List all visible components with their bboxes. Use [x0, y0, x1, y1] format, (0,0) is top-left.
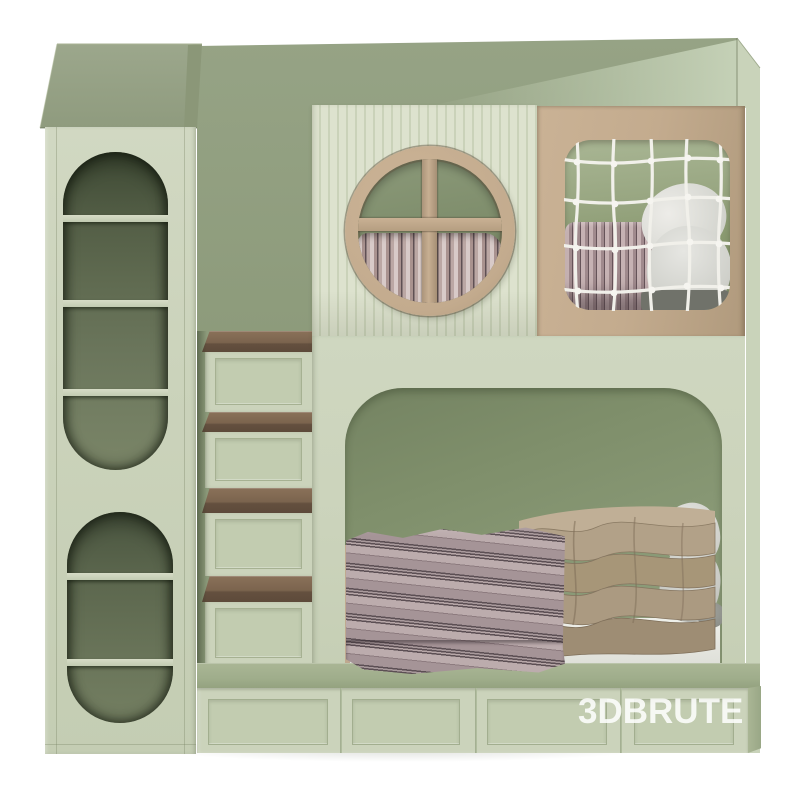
- cabinet-roof: [40, 44, 202, 128]
- shelf: [63, 215, 168, 222]
- drawer-divider: [475, 688, 477, 753]
- stair-tread: [202, 488, 312, 513]
- stair-riser: [205, 352, 312, 412]
- shelf: [63, 300, 168, 307]
- stairs: [197, 325, 312, 665]
- drawer-divider: [340, 688, 342, 753]
- stair-drawer-panel: [215, 358, 302, 405]
- stair-drawer-panel: [215, 519, 302, 569]
- blanket-hem: [346, 640, 565, 674]
- shelf: [63, 389, 168, 396]
- round-window: [345, 146, 515, 316]
- shelf: [67, 573, 173, 580]
- drawer-panel: [208, 699, 328, 745]
- drawer-panel: [352, 699, 460, 745]
- shelf: [67, 659, 173, 666]
- base-side-face: [748, 686, 761, 753]
- lower-arched-niche: [67, 512, 173, 723]
- stair-riser: [205, 602, 312, 665]
- stair-riser: [205, 513, 312, 576]
- stair-drawer-panel: [215, 608, 302, 658]
- upper-arched-niche: [63, 152, 168, 470]
- climbing-net: [558, 133, 736, 317]
- stair-riser: [205, 432, 312, 488]
- stair-drawer-panel: [215, 438, 302, 481]
- cabinet-seam: [56, 127, 57, 754]
- stairs-shadow: [197, 331, 207, 665]
- stair-tread: [202, 576, 312, 602]
- watermark: 3DBRUTE: [578, 694, 743, 729]
- storage-cabinet: [45, 127, 196, 754]
- stair-tread: [202, 331, 312, 352]
- window-muntin-horizontal: [358, 218, 502, 231]
- render-stage: 3DBRUTE: [0, 0, 800, 800]
- striped-blanket: [346, 526, 565, 674]
- stair-tread: [202, 412, 312, 432]
- round-window-interior: [358, 159, 502, 303]
- cabinet-seam: [184, 127, 185, 754]
- cabinet-seam: [45, 744, 196, 745]
- window-muntin-vertical: [422, 159, 437, 303]
